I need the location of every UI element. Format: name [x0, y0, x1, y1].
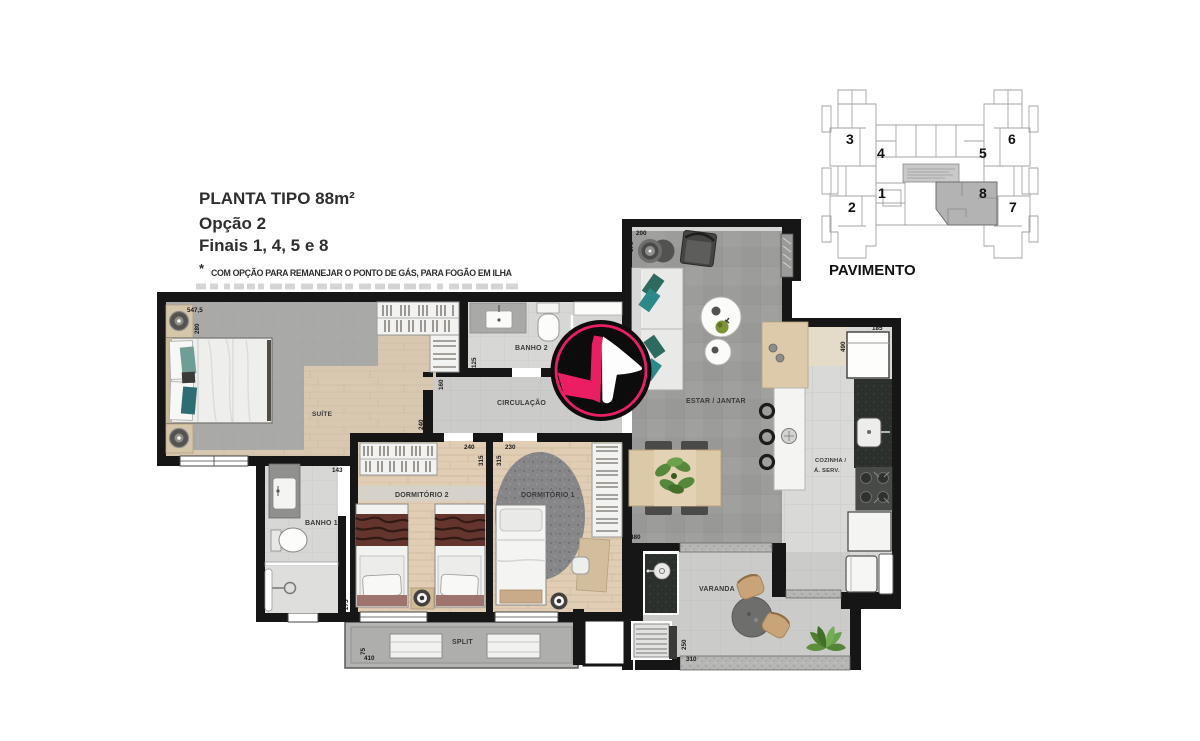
- svg-text:410: 410: [364, 655, 375, 662]
- svg-text:5: 5: [979, 145, 987, 161]
- svg-text:547,5: 547,5: [187, 307, 203, 314]
- svg-text:DORMITÓRIO 2: DORMITÓRIO 2: [395, 490, 449, 499]
- svg-text:240: 240: [464, 444, 475, 451]
- svg-text:125: 125: [471, 357, 478, 368]
- svg-text:CIRCULAÇÃO: CIRCULAÇÃO: [497, 398, 546, 407]
- svg-text:Á. SERV.: Á. SERV.: [814, 467, 840, 474]
- svg-text:Finais 1, 4, 5 e 8: Finais 1, 4, 5 e 8: [199, 236, 328, 255]
- svg-text:7: 7: [1009, 199, 1017, 215]
- svg-text:240: 240: [418, 419, 425, 430]
- svg-text:ESTAR / JANTAR: ESTAR / JANTAR: [686, 398, 746, 405]
- svg-text:2: 2: [848, 199, 856, 215]
- svg-text:280: 280: [194, 323, 201, 334]
- svg-text:8: 8: [979, 185, 987, 201]
- svg-text:COM OPÇÃO PARA REMANEJAR O PON: COM OPÇÃO PARA REMANEJAR O PONTO DE GÁS,…: [211, 268, 513, 278]
- svg-text:BANHO 2: BANHO 2: [515, 345, 548, 352]
- svg-text:VARANDA: VARANDA: [699, 586, 735, 593]
- svg-text:310: 310: [686, 656, 697, 663]
- svg-text:SPLIT: SPLIT: [452, 639, 473, 646]
- svg-text:185: 185: [872, 325, 883, 332]
- svg-text:315: 315: [496, 455, 503, 466]
- svg-text:Opção 2: Opção 2: [199, 214, 266, 233]
- svg-text:75: 75: [360, 647, 367, 655]
- svg-text:143: 143: [332, 467, 343, 474]
- svg-text:480: 480: [630, 534, 641, 541]
- svg-text:4: 4: [877, 145, 885, 161]
- svg-text:315: 315: [478, 455, 485, 466]
- svg-text:275: 275: [343, 599, 350, 610]
- svg-text:1: 1: [878, 185, 886, 201]
- svg-text:200: 200: [636, 230, 647, 237]
- svg-text:BANHO 1: BANHO 1: [305, 520, 338, 527]
- svg-text:575: 575: [628, 241, 635, 252]
- svg-text:160: 160: [438, 379, 445, 390]
- svg-text:490: 490: [840, 341, 847, 352]
- svg-text:DORMITÓRIO 1: DORMITÓRIO 1: [521, 490, 575, 499]
- svg-text:250: 250: [681, 639, 688, 650]
- svg-text:COZINHA /: COZINHA /: [815, 458, 846, 464]
- svg-text:PAVIMENTO: PAVIMENTO: [829, 262, 916, 279]
- svg-text:6: 6: [1008, 131, 1016, 147]
- svg-text:230: 230: [505, 444, 516, 451]
- svg-text:PLANTA TIPO 88m²: PLANTA TIPO 88m²: [199, 189, 355, 208]
- svg-text:SUÍTE: SUÍTE: [312, 409, 333, 418]
- svg-text:3: 3: [846, 131, 854, 147]
